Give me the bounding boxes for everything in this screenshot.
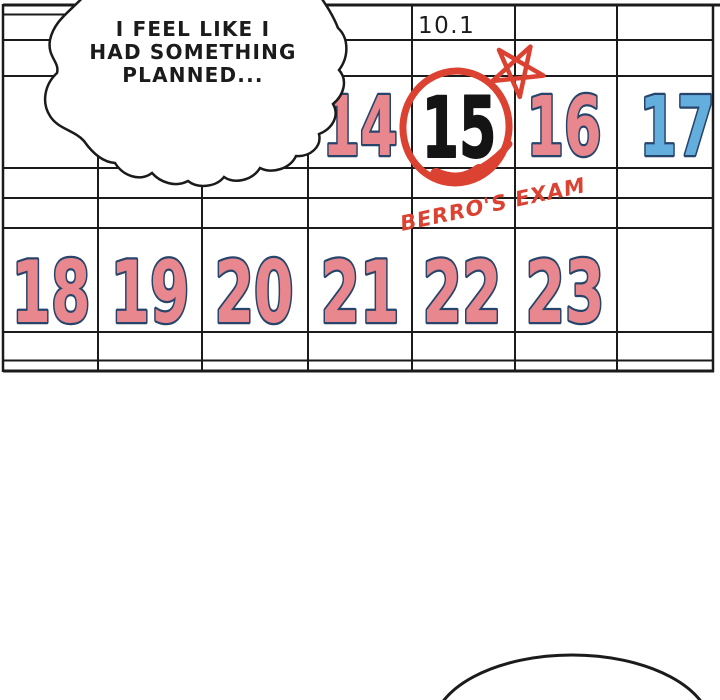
svg-text:19: 19 <box>111 243 190 343</box>
calendar-date-19: 19 <box>111 243 190 343</box>
svg-text:22: 22 <box>423 243 502 343</box>
thought-bubble-line-2: HAD SOMETHING <box>89 40 296 64</box>
thought-bubble-line-1: I FEEL LIKE I <box>116 17 270 41</box>
calendar-date-22: 22 <box>423 243 502 343</box>
calendar-corner-note: 10.1 <box>418 13 475 39</box>
calendar-date-21: 21 <box>321 243 400 343</box>
svg-text:16: 16 <box>526 81 601 175</box>
svg-text:23: 23 <box>526 243 605 343</box>
svg-text:21: 21 <box>321 243 400 343</box>
comic-panel: 10.1 14 15 16 17 18 19 20 21 22 23 BERRO… <box>0 0 720 700</box>
thought-bubble-line-3: PLANNED... <box>122 63 263 87</box>
calendar-date-18: 18 <box>12 243 91 343</box>
calendar-date-23: 23 <box>526 243 605 343</box>
svg-text:20: 20 <box>215 243 294 343</box>
calendar-date-20: 20 <box>215 243 294 343</box>
svg-text:17: 17 <box>639 81 714 175</box>
svg-text:18: 18 <box>12 243 91 343</box>
calendar-date-16: 16 <box>526 81 601 175</box>
calendar-date-17: 17 <box>639 81 714 175</box>
